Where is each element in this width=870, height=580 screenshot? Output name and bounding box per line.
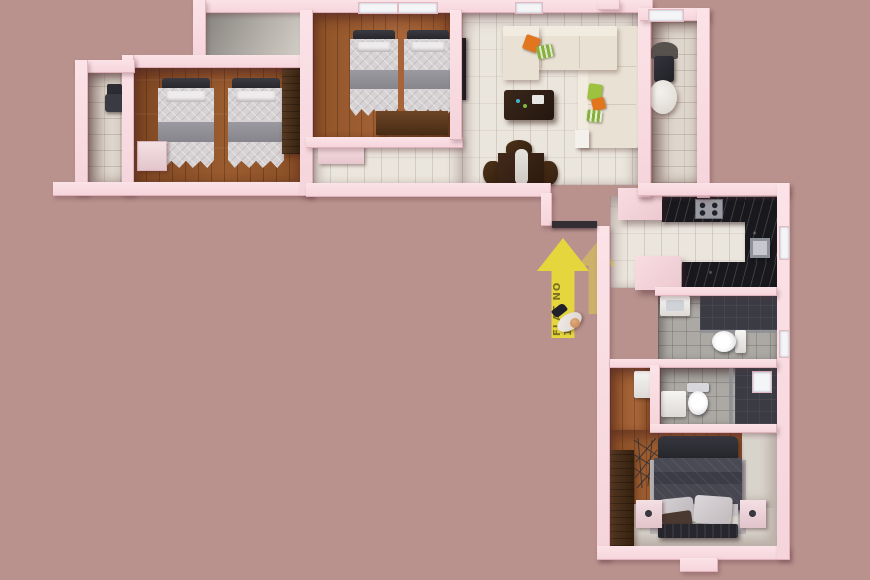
wall-wing-top	[638, 183, 790, 196]
bed-blanket-band	[404, 70, 452, 89]
bed-blanket-band	[158, 122, 214, 142]
bed-pillow	[236, 91, 276, 102]
wall-living-right	[638, 8, 651, 198]
master-dresser	[608, 450, 634, 546]
person-figure	[546, 302, 586, 344]
coffee-table-cup	[516, 99, 520, 103]
balcony-right-window	[648, 9, 684, 22]
person-head	[570, 318, 580, 328]
wall-shelf	[575, 130, 589, 148]
coffee-table-cup-2	[523, 104, 527, 108]
wall-bottom-window-bump	[680, 558, 718, 572]
master-double-bed	[650, 436, 746, 538]
master-bedroom-carpet-side	[742, 432, 777, 508]
bathroom2-toilet-bowl	[688, 391, 708, 415]
wall-balcony-right-side	[697, 8, 710, 198]
wall-bedroom1-top	[122, 55, 312, 68]
dining-table	[498, 153, 544, 185]
basin-bowl	[666, 300, 684, 311]
bedroom2-desk	[376, 111, 448, 135]
bathroom1-window	[779, 330, 790, 358]
bedroom2-window	[358, 2, 438, 14]
wall-living-top-column	[598, 0, 620, 10]
bedroom2-bed-right	[404, 30, 452, 118]
wall-kitchen-bath1-divider	[655, 287, 777, 296]
window-mullion	[397, 3, 399, 13]
balcony-right-round-table	[649, 80, 677, 114]
wall-bedroom1-left	[122, 55, 134, 195]
bed-blanket-band	[228, 122, 284, 142]
wall-bottom-left-wing	[53, 182, 313, 196]
sofa-seam	[579, 36, 580, 68]
bathroom2-shower-glass	[729, 368, 733, 424]
bed-pillow-right	[693, 495, 733, 526]
wall-bedroom-divider	[300, 10, 313, 196]
kitchen-sink	[750, 238, 770, 258]
balcony-right-chair	[654, 56, 674, 82]
kitchen-counter-bottom	[682, 262, 777, 288]
kitchen-window	[779, 226, 790, 260]
entrance-hall-floor	[206, 12, 303, 58]
bed-pillow	[411, 42, 445, 52]
coffee-table-tray	[532, 95, 544, 104]
wall-entry-stub	[541, 193, 552, 226]
bed-bench	[658, 524, 738, 538]
bedroom1-drawer-unit	[137, 141, 167, 171]
bed-pillow	[166, 91, 206, 102]
nightstand-lamp	[645, 510, 652, 517]
wall-wing-left	[597, 226, 610, 560]
bathroom1-wash-basin	[660, 296, 690, 316]
bathroom1-shower-area	[700, 296, 777, 330]
nightstand-left	[636, 500, 662, 528]
wall-bedroom2-right	[450, 10, 462, 140]
coffee-table	[504, 90, 554, 120]
bed-pillow	[357, 42, 391, 52]
sofa-chaise	[503, 26, 539, 80]
entry-door-header	[552, 221, 597, 228]
nightstand-right	[740, 500, 766, 528]
wall-balcony-left-side	[75, 60, 88, 195]
wall-hallway-bottom	[306, 183, 551, 197]
bedroom2-bed-left	[350, 30, 398, 118]
bathroom1-toilet-bowl	[712, 331, 736, 352]
gas-hob	[695, 199, 723, 219]
bathroom2-bidet	[661, 391, 686, 417]
bed-blanket-band	[350, 70, 398, 89]
wall-hall-left	[193, 0, 206, 62]
wall-nook-bath2-divider	[650, 365, 660, 431]
kitchen-tall-cabinet-2	[635, 256, 681, 290]
living-room-window	[515, 2, 543, 14]
nightstand-lamp	[749, 510, 756, 517]
wall-bedroom2-bottom	[306, 137, 463, 148]
bedroom1-bed-right	[228, 78, 284, 170]
wall-bath2-master-divider	[650, 424, 777, 433]
bathroom1-toilet-tank	[735, 330, 746, 353]
floor-plan-render: FLAT NO 1	[0, 0, 870, 580]
accent-pillow-green-striped-2	[586, 109, 602, 123]
bedroom1-wardrobe	[282, 64, 302, 154]
wall-bath1-bath2-divider	[610, 359, 777, 368]
bathroom2-window	[752, 371, 772, 393]
dining-centerpiece	[515, 149, 528, 185]
